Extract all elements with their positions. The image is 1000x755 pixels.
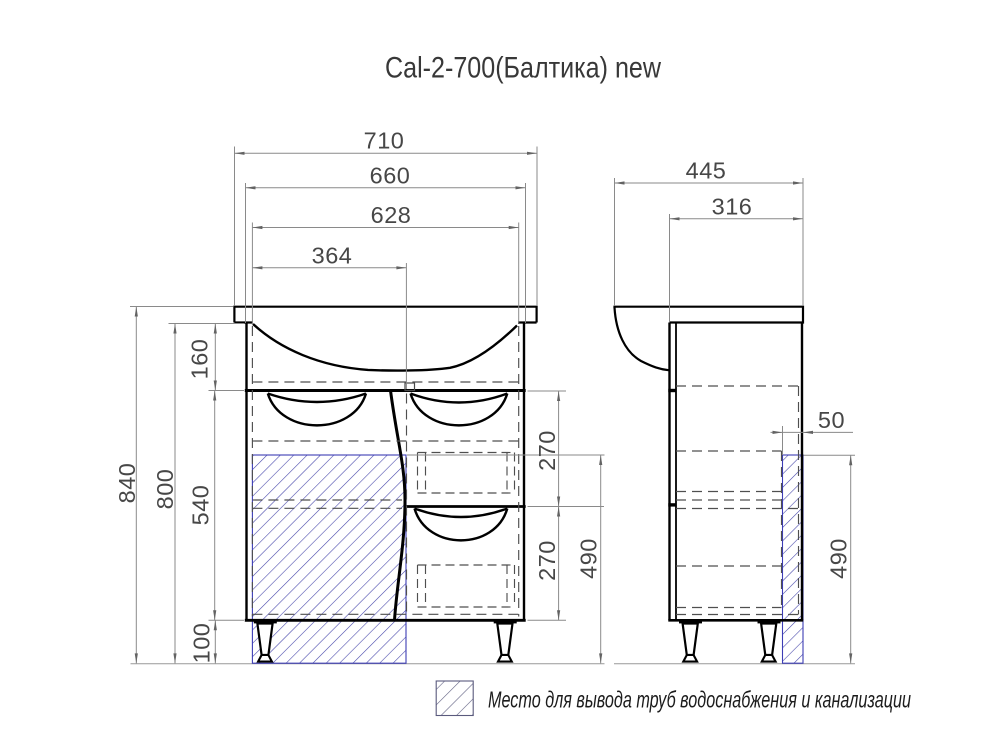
svg-text:445: 445 [686, 158, 727, 184]
svg-text:840: 840 [114, 463, 140, 504]
svg-text:160: 160 [187, 339, 213, 380]
svg-text:628: 628 [371, 202, 412, 228]
svg-text:270: 270 [534, 430, 560, 471]
svg-text:50: 50 [818, 407, 845, 433]
svg-text:660: 660 [370, 162, 411, 188]
svg-text:800: 800 [152, 469, 178, 510]
svg-text:Место для вывода труб водоснаб: Место для вывода труб водоснабжения и ка… [488, 687, 911, 713]
svg-text:316: 316 [712, 193, 753, 219]
svg-text:540: 540 [188, 485, 214, 526]
svg-text:710: 710 [364, 128, 405, 154]
svg-text:490: 490 [576, 538, 602, 579]
svg-text:270: 270 [534, 540, 560, 581]
svg-text:100: 100 [189, 623, 215, 664]
svg-text:490: 490 [826, 538, 852, 579]
svg-text:364: 364 [312, 242, 353, 268]
svg-text:Cal-2-700(Балтика) new: Cal-2-700(Балтика) new [385, 52, 661, 85]
